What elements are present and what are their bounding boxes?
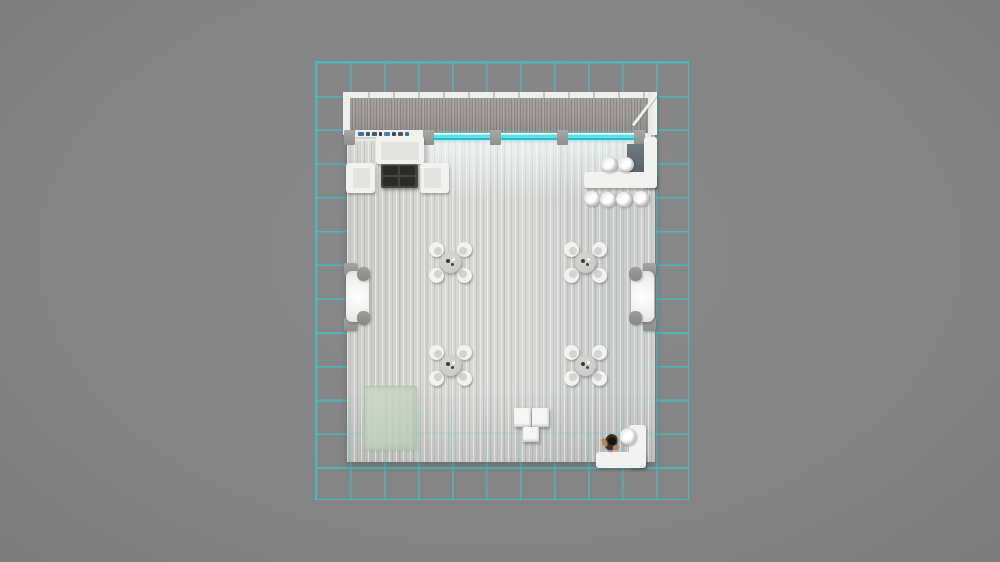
dining-chair-seat (569, 270, 577, 278)
table-centerpiece (452, 258, 455, 261)
table-centerpiece (587, 258, 590, 261)
bar-stool (584, 191, 600, 206)
table-centerpiece (581, 362, 585, 366)
dining-chair-seat (569, 350, 577, 358)
dining-chair-seat (434, 270, 442, 278)
canopy-frame-top (343, 92, 657, 98)
wall-post (423, 130, 434, 145)
green-rug (364, 386, 417, 450)
table-centerpiece (452, 361, 455, 364)
dining-chair-seat (594, 373, 602, 381)
dining-table (575, 252, 596, 273)
booth-render-canvas (0, 0, 1000, 562)
display-cube (532, 408, 549, 427)
brochure-item (372, 132, 377, 136)
person-arm (613, 445, 619, 450)
table-centerpiece (451, 263, 454, 266)
dining-chair-seat (434, 373, 442, 381)
canopy-frame-left (343, 92, 350, 135)
brochure-item (358, 132, 364, 136)
coffee-table-cushion (400, 166, 415, 175)
dining-chair-seat (459, 373, 467, 381)
side-sofa-cushion (357, 267, 370, 281)
dining-table (440, 355, 461, 376)
table-centerpiece (586, 263, 589, 266)
bar-stool (616, 192, 632, 207)
side-sofa-cushion (629, 311, 642, 325)
wall-post (557, 130, 568, 145)
wall-post (490, 130, 501, 145)
table-centerpiece (446, 362, 450, 366)
table-centerpiece (581, 259, 585, 263)
table-centerpiece (451, 366, 454, 369)
brochure-item (379, 132, 382, 136)
side-sofa-cushion (629, 267, 642, 281)
dining-table (440, 252, 461, 273)
dining-chair-seat (594, 247, 602, 255)
lounge-sofa-seat (381, 142, 419, 160)
reception-counter-horizontal (596, 452, 646, 468)
table-centerpiece (446, 259, 450, 263)
wall-post (344, 130, 355, 145)
dining-chair-seat (459, 247, 467, 255)
dining-chair-seat (434, 247, 442, 255)
brochure-item (384, 132, 390, 136)
dining-chair-seat (459, 350, 467, 358)
dining-table (575, 355, 596, 376)
brochure-item (366, 132, 370, 136)
light-glow (497, 141, 561, 203)
brochure-item (392, 132, 396, 136)
cyan-light-strip (434, 133, 490, 140)
dining-chair-seat (434, 350, 442, 358)
bar-counter-horizontal (584, 172, 657, 188)
display-cube (514, 408, 531, 427)
dining-chair-seat (569, 247, 577, 255)
coffee-table-cushion (383, 166, 398, 175)
display-cube (523, 427, 539, 442)
bar-stool (600, 192, 616, 207)
coffee-table-cushion (400, 177, 415, 186)
bar-stool (618, 157, 634, 172)
bar-stool (633, 191, 649, 206)
canopy-wood-panel (343, 92, 657, 135)
dining-chair-seat (569, 373, 577, 381)
lounge-armchair-seat (353, 168, 370, 188)
table-centerpiece (587, 361, 590, 364)
table-centerpiece (586, 366, 589, 369)
brochure-item (405, 132, 409, 136)
cyan-light-strip (501, 133, 557, 140)
person-head (608, 437, 616, 445)
dining-chair-seat (594, 350, 602, 358)
cyan-light-strip (568, 133, 634, 140)
brochure-item (398, 132, 403, 136)
lounge-armchair-seat (424, 168, 441, 188)
bar-stool (601, 157, 617, 172)
dining-chair-seat (459, 270, 467, 278)
dining-chair-seat (594, 270, 602, 278)
reception-stool (620, 428, 636, 445)
side-sofa-cushion (357, 311, 370, 325)
coffee-table-cushion (383, 177, 398, 186)
